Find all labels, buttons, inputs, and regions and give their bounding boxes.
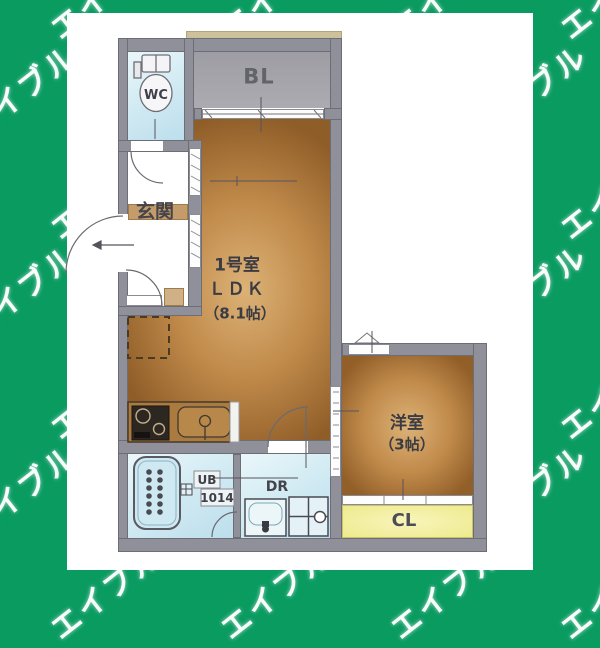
bath-label-ub: UB bbox=[198, 473, 217, 487]
washbasin-icon bbox=[245, 499, 286, 536]
toilet-icon bbox=[134, 55, 172, 112]
unit-title-line1: 1号室 bbox=[214, 258, 260, 275]
unit-title-line3: （8.1帖） bbox=[204, 307, 276, 322]
wc-door-arc bbox=[131, 151, 163, 183]
bath-door-arc bbox=[212, 512, 237, 537]
bath-label-1014: 1014 bbox=[200, 491, 233, 505]
washroom-door-arc bbox=[268, 407, 308, 447]
western-room-label-line1: 洋室 bbox=[390, 416, 424, 433]
western-room-label-line2: （3帖） bbox=[379, 438, 434, 453]
western-window-vent bbox=[355, 333, 379, 343]
fridge-space bbox=[128, 317, 169, 358]
entrance-arrow bbox=[93, 241, 134, 249]
unit-title-line2: ＬＤＫ bbox=[209, 282, 266, 299]
bath-size-label: UB 1014 bbox=[194, 471, 234, 506]
stove-icon bbox=[132, 406, 169, 440]
wc-label: WC bbox=[144, 88, 168, 103]
fixtures-layer: WC bbox=[0, 0, 600, 586]
bathtub-icon bbox=[134, 457, 180, 529]
balcony-label: BL bbox=[243, 67, 274, 88]
entrance-label: 玄関 bbox=[136, 203, 174, 222]
hall-door-arc bbox=[126, 270, 162, 306]
kitchen-counter bbox=[128, 402, 239, 442]
bath-faucet-icon bbox=[181, 484, 192, 495]
closet-label: CL bbox=[392, 512, 417, 530]
sink-icon bbox=[178, 407, 230, 440]
washing-machine-pan-icon bbox=[289, 497, 328, 536]
counter-end bbox=[230, 402, 239, 442]
washroom-label: DR bbox=[266, 480, 288, 494]
